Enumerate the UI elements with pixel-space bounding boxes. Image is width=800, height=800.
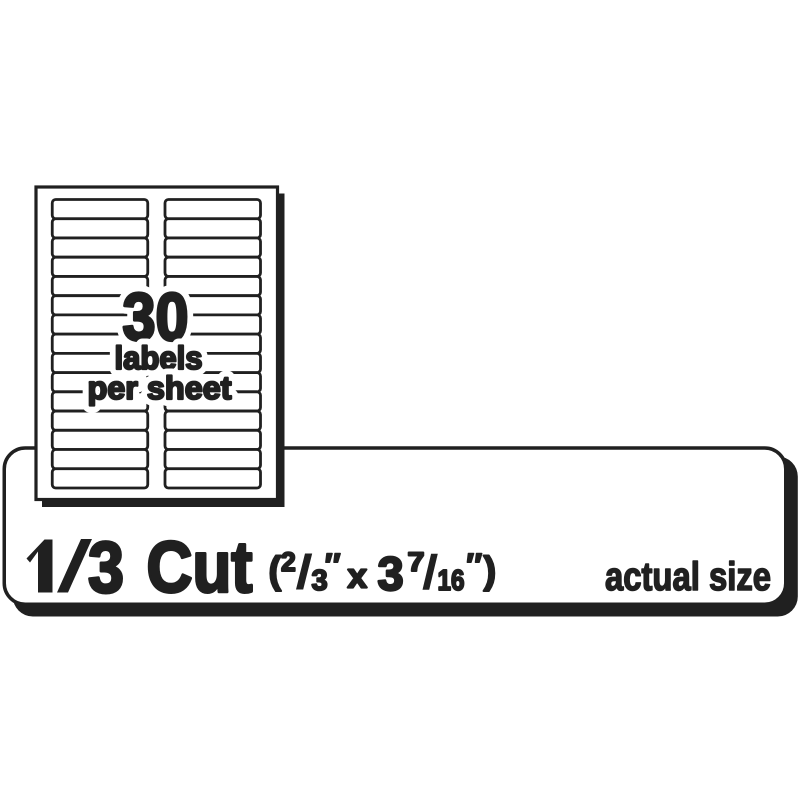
svg-text:2: 2 — [281, 547, 296, 577]
svg-text:16: 16 — [438, 565, 465, 597]
svg-text:per sheet: per sheet — [88, 370, 232, 406]
svg-text:(: ( — [269, 550, 282, 592]
svg-text:): ) — [484, 550, 497, 592]
svg-text:x: x — [348, 558, 368, 596]
svg-text:″: ″ — [466, 547, 482, 585]
svg-text:3: 3 — [378, 547, 404, 600]
svg-text:″: ″ — [325, 547, 341, 585]
svg-text:3: 3 — [88, 528, 124, 608]
svg-text:Cut: Cut — [147, 528, 253, 608]
svg-text:actual size: actual size — [605, 555, 771, 599]
svg-text:7: 7 — [408, 547, 425, 577]
